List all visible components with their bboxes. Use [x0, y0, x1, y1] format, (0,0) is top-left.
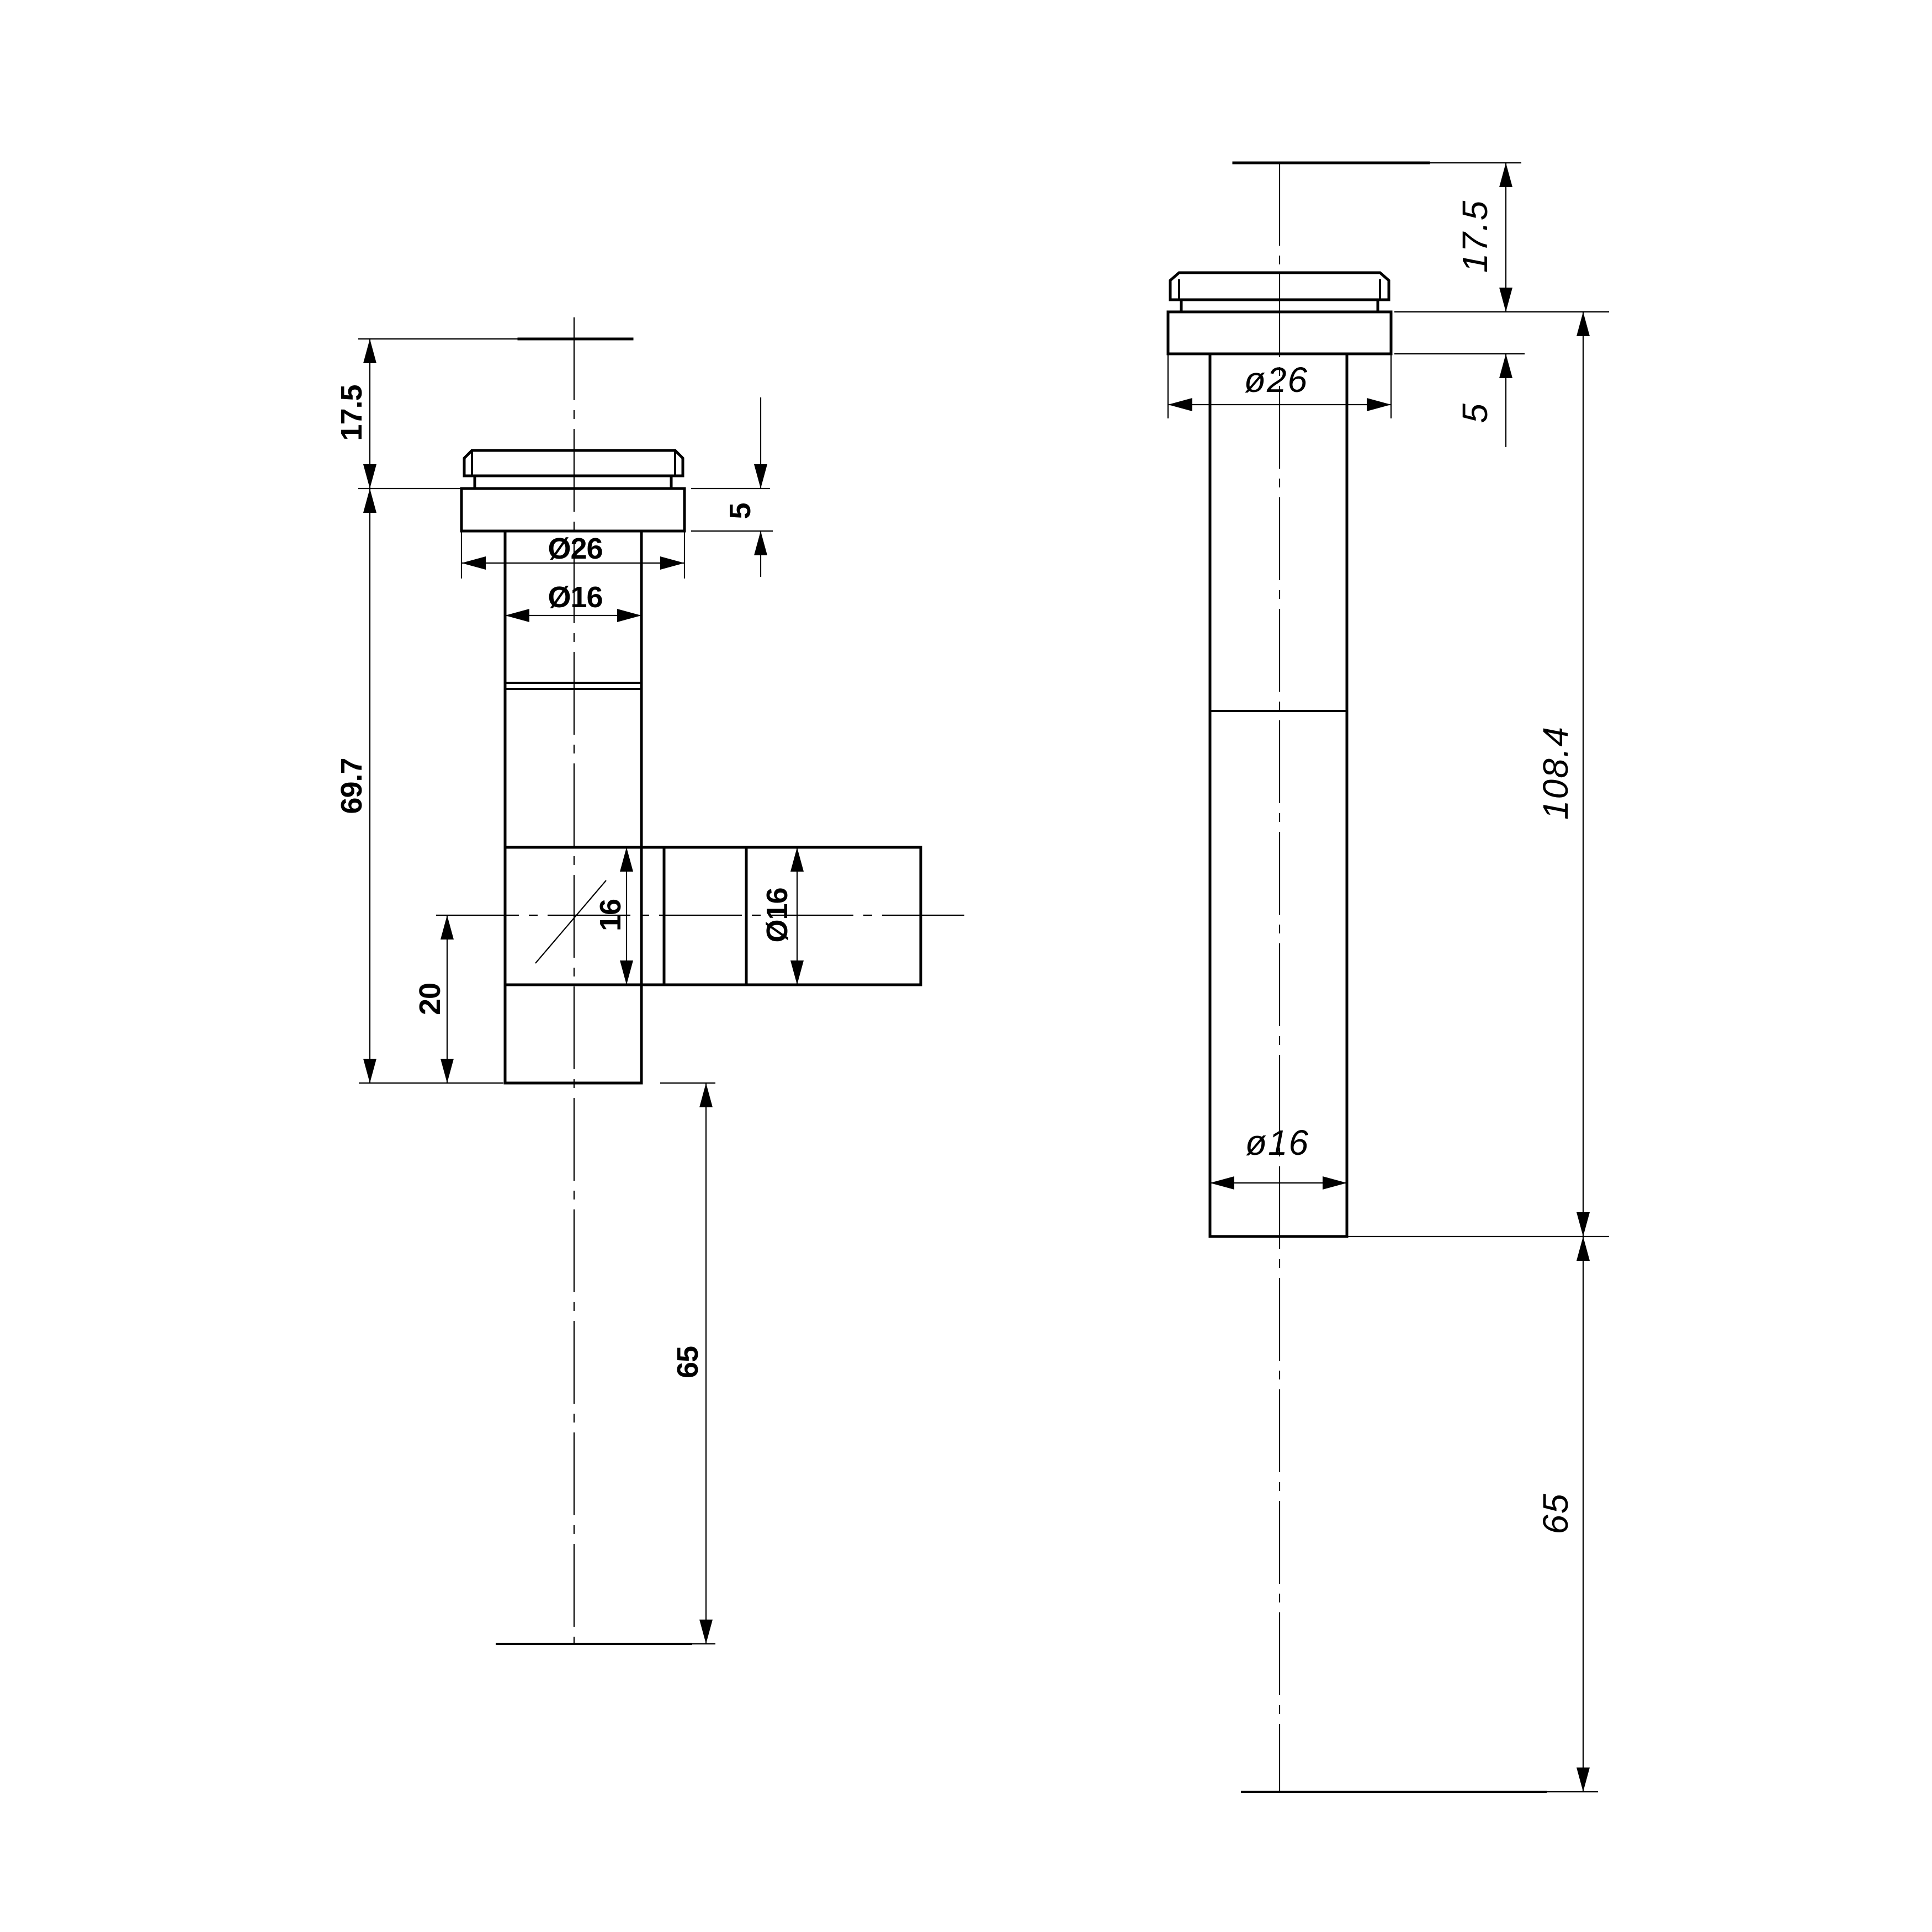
arrowhead-up-icon — [363, 339, 376, 363]
arrowhead-right-icon — [617, 609, 641, 622]
arrowhead-up-icon — [363, 489, 376, 513]
dim-flange-diameter-label: ø26 — [1244, 360, 1308, 400]
side-dimension-labels: 17.5 5 ø26 108.4 ø16 65 — [1244, 200, 1575, 1535]
arrowhead-down-icon — [1499, 288, 1512, 312]
arrowhead-down-icon — [363, 1059, 376, 1083]
dim-lower-length-label: 65 — [671, 1346, 704, 1378]
dim-branch-height-label: 16 — [594, 899, 627, 931]
arrowhead-down-icon — [790, 960, 804, 985]
engineering-drawing-canvas: 17.5 69.7 5 Ø26 Ø16 16 Ø16 20 65 — [0, 0, 1932, 1932]
arrowhead-left-icon — [505, 609, 529, 622]
dim-tube-diameter-label: ø16 — [1245, 1123, 1309, 1163]
arrowhead-up-icon — [1499, 354, 1512, 378]
neck-outline — [475, 476, 671, 489]
tube-groove-lines — [505, 683, 641, 689]
arrowhead-up-icon — [1577, 312, 1590, 336]
arrowhead-up-icon — [790, 847, 804, 872]
ext-flange — [1394, 312, 1609, 354]
front-part-outline — [461, 339, 921, 1644]
arrowhead-right-icon — [1323, 1176, 1347, 1190]
arrowhead-up-icon — [440, 915, 454, 940]
arrowhead-left-icon — [1210, 1176, 1234, 1190]
dim-flange-thickness-label: 5 — [1455, 402, 1495, 423]
arrowhead-up-icon — [1577, 1236, 1590, 1261]
side-arrowheads — [1168, 163, 1590, 1792]
side-dimension-lines — [1168, 163, 1609, 1792]
dim-flange-thickness-label: 5 — [724, 503, 757, 519]
dim-lower-length-label: 65 — [1536, 1493, 1575, 1534]
arrowhead-right-icon — [660, 556, 684, 570]
arrowhead-up-icon — [1499, 163, 1512, 187]
dim-total-length-label: 108.4 — [1536, 726, 1575, 820]
dim-flange-diameter-label: Ø26 — [548, 532, 602, 565]
arrowhead-left-icon — [461, 556, 486, 570]
dim-branch-offset-label: 20 — [413, 983, 447, 1015]
arrowhead-down-icon — [440, 1059, 454, 1083]
arrowhead-up-icon — [699, 1083, 713, 1107]
arrowhead-up-icon — [620, 847, 633, 872]
arrowhead-down-icon — [1577, 1768, 1590, 1792]
arrowhead-down-icon — [1577, 1212, 1590, 1236]
arrowhead-down-icon — [620, 960, 633, 985]
front-centerlines — [436, 317, 964, 1644]
arrowhead-right-icon — [1367, 398, 1391, 411]
front-dimension-labels: 17.5 69.7 5 Ø26 Ø16 16 Ø16 20 65 — [335, 385, 794, 1378]
arrowhead-left-icon — [1168, 398, 1192, 411]
arrowhead-down-icon — [363, 464, 376, 489]
arrowhead-up-icon — [754, 531, 767, 555]
flange-outline — [461, 489, 684, 531]
dim-branch-diameter-label: Ø16 — [761, 888, 794, 942]
arrowhead-down-icon — [699, 1620, 713, 1644]
dim-cap-height-label: 17.5 — [335, 385, 368, 440]
dim-body-length-label: 69.7 — [335, 758, 368, 814]
branch-top-bottom — [505, 847, 921, 985]
tube-outline — [1210, 354, 1347, 1236]
dim-cap-height-label: 17.5 — [1455, 200, 1495, 273]
arrowhead-down-icon — [754, 464, 767, 489]
dim-tube-diameter-label: Ø16 — [548, 581, 602, 614]
side-view: 17.5 5 ø26 108.4 ø16 65 — [1168, 163, 1609, 1792]
front-view: 17.5 69.7 5 Ø26 Ø16 16 Ø16 20 65 — [335, 317, 964, 1644]
